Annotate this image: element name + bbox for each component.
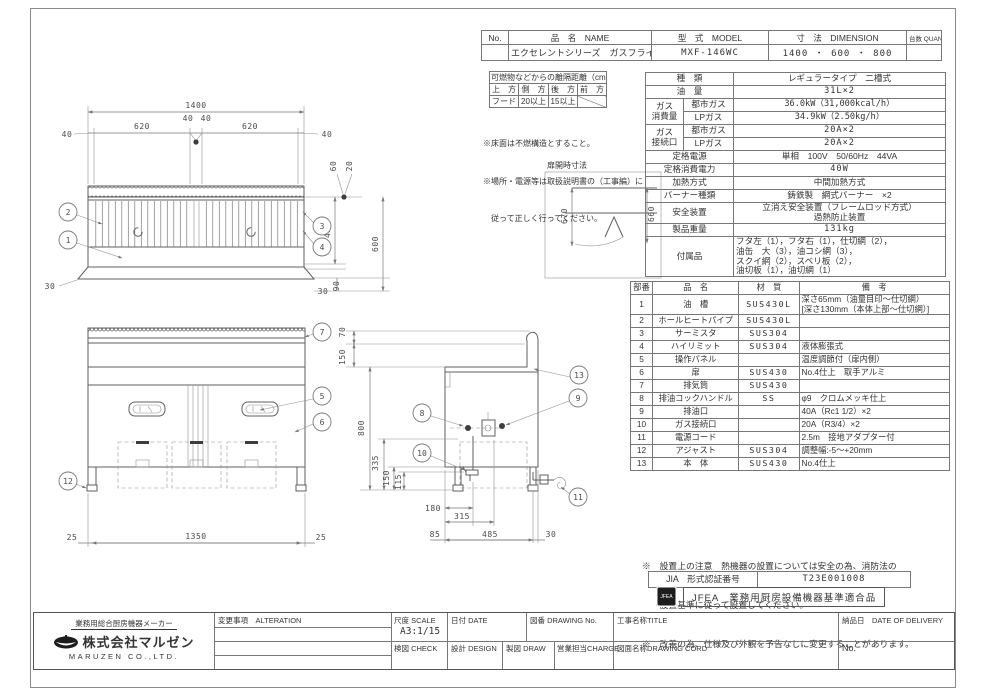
dim-side-85: 85 bbox=[430, 530, 441, 539]
balloon-5: 5 bbox=[260, 387, 331, 410]
svg-text:8: 8 bbox=[420, 409, 425, 418]
center-marker-dot bbox=[193, 139, 198, 144]
table-row: 1油 槽SUS430L深さ65mm（油量目印～仕切網） [深さ130mm（本体上… bbox=[631, 295, 950, 315]
check-label: 検図 CHECK bbox=[394, 643, 437, 654]
dim-side-180: 180 bbox=[425, 504, 441, 513]
delivery-label: 納品日 DATE OF DELIVERY bbox=[842, 615, 943, 626]
dim-side-315: 315 bbox=[454, 512, 470, 521]
drawing-no-label: 図番 DRAWING No. bbox=[530, 615, 597, 626]
dim-side-150: 150 bbox=[338, 349, 347, 365]
part-note: 2.5m 接地アダプター付 bbox=[799, 432, 949, 445]
dim-side-485: 485 bbox=[482, 530, 498, 539]
jfea-stamp-icon: JFEA bbox=[656, 586, 677, 607]
part-no: 10 bbox=[631, 419, 653, 432]
part-material: SUS430L bbox=[739, 295, 799, 315]
spec-power-label: 定格電源 bbox=[646, 151, 734, 164]
no-label: No. bbox=[842, 643, 856, 653]
spec-gas-connection-label: ガス 接続口 bbox=[646, 125, 684, 151]
maker-tagline: 業務用総合厨房機器メーカー bbox=[71, 618, 177, 630]
dim-front-1350: 1350 bbox=[185, 532, 206, 541]
dim-plan-40-left: 40 bbox=[62, 130, 73, 139]
dim-plan-60: 60 bbox=[329, 161, 338, 172]
table-row: 9排油口40A（Rc1 1/2）×2 bbox=[631, 406, 950, 419]
parts-h-no: 部番 bbox=[631, 282, 653, 295]
part-name: ハイリミット bbox=[653, 341, 739, 354]
part-note: 調整幅:-5～+20mm bbox=[799, 445, 949, 458]
svg-text:7: 7 bbox=[320, 328, 325, 337]
spec-accessories-value: フタ左（1），フタ右（1），仕切網（2）， 油缶 大（3），油コシ網（3）， ス… bbox=[734, 236, 946, 277]
table-row: 8排油コックハンドルSSφ9 クロムメッキ仕上 bbox=[631, 393, 950, 406]
clearance-h-top: 上 方 bbox=[490, 84, 519, 96]
spec-gas-connection-val1: 20A×2 bbox=[734, 125, 946, 138]
part-note: 液体膨張式 bbox=[799, 341, 949, 354]
part-note bbox=[799, 328, 949, 341]
part-no: 7 bbox=[631, 380, 653, 393]
clearance-notes: ※床面は不燃構造とすること。 ※場所・電源等は取扱説明書の（工事編）に 従って正… bbox=[483, 113, 643, 251]
part-material: SUS304 bbox=[739, 445, 799, 458]
dim-side-335: 335 bbox=[371, 455, 380, 471]
svg-text:12: 12 bbox=[63, 477, 73, 486]
header-col-dimension: 寸 法 DIMENSION bbox=[769, 31, 907, 45]
dim-plan-620-left: 620 bbox=[134, 122, 150, 131]
part-note: 温度調節付（扉内側） bbox=[799, 354, 949, 367]
dim-front-25-left: 25 bbox=[67, 533, 78, 542]
clearance-h-side: 側 方 bbox=[519, 84, 549, 96]
header-table: No. 品 名 NAME 型 式 MODEL 寸 法 DIMENSION 台数 … bbox=[481, 30, 942, 61]
spec-safety-label: 安全装置 bbox=[646, 203, 734, 224]
title-label: 工事名称TITLE bbox=[617, 615, 667, 626]
spec-gas-consumption-sub1: 都市ガス bbox=[684, 99, 734, 112]
clearance-note-1: ※床面は不燃構造とすること。 bbox=[483, 138, 643, 151]
part-no: 5 bbox=[631, 354, 653, 367]
part-no: 8 bbox=[631, 393, 653, 406]
part-note bbox=[799, 315, 949, 328]
spec-heating-value: 中間加熱方式 bbox=[734, 177, 946, 190]
door-handle-left bbox=[129, 402, 165, 416]
alteration-label: 変更事項 ALTERATION bbox=[218, 615, 301, 626]
part-note: φ9 クロムメッキ仕上 bbox=[799, 393, 949, 406]
table-row: 7排気筒SUS430 bbox=[631, 380, 950, 393]
spec-type-value: レギュラータイプ 二槽式 bbox=[734, 73, 946, 86]
spec-gas-connection-sub1: 都市ガス bbox=[684, 125, 734, 138]
svg-text:4: 4 bbox=[320, 243, 325, 252]
oil-cans-hidden bbox=[118, 441, 276, 488]
product-name: エクセレントシリーズ ガスフライヤー bbox=[509, 45, 652, 61]
dim-side-800: 800 bbox=[357, 420, 366, 436]
spec-gas-consumption-val1: 36.0kW（31,000kcal/h） bbox=[734, 99, 946, 112]
clearance-note-2: ※場所・電源等は取扱説明書の（工事編）に bbox=[483, 176, 643, 189]
dim-plan-30-left: 30 bbox=[45, 282, 56, 291]
front-view: 25 1350 25 7 5 6 12 bbox=[59, 323, 331, 547]
balloon-6: 6 bbox=[295, 413, 331, 432]
dim-plan-90: 90 bbox=[332, 281, 341, 292]
balloon-9: 9 bbox=[506, 389, 587, 425]
spec-weight-value: 131kg bbox=[734, 223, 946, 236]
dim-plan-40-c1: 40 bbox=[183, 114, 194, 123]
part-material bbox=[739, 406, 799, 419]
part-name: 本 体 bbox=[653, 458, 739, 471]
gas-piping-detail bbox=[450, 412, 505, 436]
door-handle-right bbox=[242, 402, 278, 416]
cord-label: 図面名称DRAWING CORD bbox=[617, 643, 707, 654]
table-row: 2ホールヒートパイプSUS430L bbox=[631, 315, 950, 328]
svg-text:10: 10 bbox=[417, 449, 427, 458]
clearance-h-front: 前 方 bbox=[578, 84, 607, 96]
part-no: 9 bbox=[631, 406, 653, 419]
dimension-value: 1400 ・ 600 ・ 800 bbox=[769, 45, 907, 61]
part-material: SUS304 bbox=[739, 328, 799, 341]
part-no: 1 bbox=[631, 295, 653, 315]
header-col-name: 品 名 NAME bbox=[509, 31, 652, 45]
company-cell: 業務用総合厨房機器メーカー 株式会社マルゼン MARUZEN CO.,LTD. bbox=[34, 613, 214, 669]
svg-text:6: 6 bbox=[320, 418, 325, 427]
parts-h-material: 材 質 bbox=[739, 282, 799, 295]
clearance-v-side: 20以上 bbox=[519, 96, 549, 108]
svg-text:1: 1 bbox=[66, 236, 71, 245]
table-row: 13本 体SUS430No.4仕上 bbox=[631, 458, 950, 471]
spec-burner-value: 鋳鉄製 網式バーナー ×2 bbox=[734, 190, 946, 203]
table-row: 3サーミスタSUS304 bbox=[631, 328, 950, 341]
part-name: 油 槽 bbox=[653, 295, 739, 315]
dim-plan-40-right: 40 bbox=[322, 130, 333, 139]
clearance-v-top: フード bbox=[490, 96, 519, 108]
part-material bbox=[739, 419, 799, 432]
table-row: 11電源コード2.5m 接地アダプター付 bbox=[631, 432, 950, 445]
side-view: 70 150 800 335 150 115 180 315 85 bbox=[338, 327, 588, 543]
part-material: SUS304 bbox=[739, 341, 799, 354]
svg-text:9: 9 bbox=[576, 394, 581, 403]
jfea-certification: JFEA JFEA 業務用厨房設備機器基準適合品 bbox=[656, 586, 885, 607]
clearance-h-rear: 後 方 bbox=[549, 84, 578, 96]
jfea-text: JFEA 業務用厨房設備機器基準適合品 bbox=[683, 587, 885, 607]
part-note: 20A（R3/4）×2 bbox=[799, 419, 949, 432]
part-name: アジャスト bbox=[653, 445, 739, 458]
jia-label: JIA 形式認証番号 bbox=[649, 572, 758, 587]
dim-plan-40-c2: 40 bbox=[201, 114, 212, 123]
spec-gas-connection-sub2: LPガス bbox=[684, 138, 734, 151]
part-no: 6 bbox=[631, 367, 653, 380]
part-no: 2 bbox=[631, 315, 653, 328]
table-row: 12アジャストSUS304調整幅:-5～+20mm bbox=[631, 445, 950, 458]
part-no: 4 bbox=[631, 341, 653, 354]
parts-h-name: 品 名 bbox=[653, 282, 739, 295]
part-no: 3 bbox=[631, 328, 653, 341]
part-note: 深さ65mm（油量目印～仕切網） [深さ130mm（本体上部～仕切網）] bbox=[799, 295, 949, 315]
drawing-sheet: 1400 40 620 40 40 620 40 bbox=[0, 0, 983, 695]
header-no-value bbox=[482, 45, 509, 61]
spec-gas-consumption-val2: 34.9kW（2.50kg/h） bbox=[734, 112, 946, 125]
charge-label: 営業担当CHARGE bbox=[557, 643, 619, 654]
part-material: SUS430 bbox=[739, 380, 799, 393]
svg-text:3: 3 bbox=[320, 222, 325, 231]
balloon-12: 12 bbox=[59, 472, 86, 490]
clearance-v-rear: 15以上 bbox=[549, 96, 578, 108]
spec-power-consumption-value: 40W bbox=[734, 164, 946, 177]
spec-burner-label: バーナー種類 bbox=[646, 190, 734, 203]
balloon-3: 3 bbox=[303, 212, 331, 235]
table-row: 6扉SUS430No.4仕上 取手アルミ bbox=[631, 367, 950, 380]
balloon-10: 10 bbox=[413, 444, 465, 470]
dim-side-30: 30 bbox=[546, 530, 557, 539]
spec-type-label: 種 類 bbox=[646, 73, 734, 86]
spec-weight-label: 製品重量 bbox=[646, 223, 734, 236]
part-no: 13 bbox=[631, 458, 653, 471]
part-material: SUS430 bbox=[739, 458, 799, 471]
part-note: No.4仕上 bbox=[799, 458, 949, 471]
spec-power-consumption-label: 定格消費電力 bbox=[646, 164, 734, 177]
header-col-no: No. bbox=[482, 31, 509, 45]
part-name: ホールヒートパイプ bbox=[653, 315, 739, 328]
scale-value: A3:1/15 bbox=[400, 626, 440, 637]
part-name: 排油コックハンドル bbox=[653, 393, 739, 406]
part-note: No.4仕上 取手アルミ bbox=[799, 367, 949, 380]
maruzen-logo-icon bbox=[53, 634, 79, 649]
part-name: ガス接続口 bbox=[653, 419, 739, 432]
part-name: 排油口 bbox=[653, 406, 739, 419]
plan-view: 1400 40 620 40 40 620 40 bbox=[45, 101, 390, 296]
parts-h-note: 備 考 bbox=[799, 282, 949, 295]
part-name: 電源コード bbox=[653, 432, 739, 445]
part-material bbox=[739, 432, 799, 445]
dim-plan-600: 600 bbox=[371, 236, 380, 252]
balloon-8: 8 bbox=[413, 404, 463, 426]
header-col-quantity: 台数 QUANTITY bbox=[907, 31, 942, 45]
table-row: 4ハイリミットSUS304液体膨張式 bbox=[631, 341, 950, 354]
spec-power-value: 単相 100V 50/60Hz 44VA bbox=[734, 151, 946, 164]
quantity-value bbox=[907, 45, 942, 61]
svg-text:13: 13 bbox=[574, 371, 584, 380]
part-no: 12 bbox=[631, 445, 653, 458]
dim-side-70: 70 bbox=[338, 327, 347, 338]
dim-plan-1400: 1400 bbox=[185, 101, 206, 110]
clearance-v-front bbox=[578, 96, 607, 108]
spec-gas-connection-val2: 20A×2 bbox=[734, 138, 946, 151]
part-material: SUS430 bbox=[739, 367, 799, 380]
dim-front-25-right: 25 bbox=[316, 533, 327, 542]
scale-label: 尺度 SCALE bbox=[394, 615, 436, 626]
dim-side-115: 115 bbox=[394, 474, 403, 490]
spec-safety-value: 立消え安全装置（フレームロッド方式） 過熱防止装置 bbox=[734, 203, 946, 224]
dim-plan-620-right: 620 bbox=[242, 122, 258, 131]
part-name: サーミスタ bbox=[653, 328, 739, 341]
part-material: SS bbox=[739, 393, 799, 406]
dim-plan-30-right: 30 bbox=[318, 287, 329, 296]
spec-accessories-label: 付属品 bbox=[646, 236, 734, 277]
part-name: 排気筒 bbox=[653, 380, 739, 393]
dim-plan-20: 20 bbox=[345, 161, 354, 172]
design-label: 設計 DESIGN bbox=[451, 643, 497, 654]
date-label: 日付 DATE bbox=[451, 615, 488, 626]
balloon-11: 11 bbox=[561, 487, 587, 506]
part-no: 11 bbox=[631, 432, 653, 445]
company-name: 株式会社マルゼン bbox=[82, 632, 194, 651]
svg-text:2: 2 bbox=[66, 208, 71, 217]
part-material bbox=[739, 354, 799, 367]
spec-heating-label: 加熱方式 bbox=[646, 177, 734, 190]
jia-number: T23E001008 bbox=[758, 572, 910, 587]
spec-gas-consumption-sub2: LPガス bbox=[684, 112, 734, 125]
drain-faucet bbox=[463, 436, 478, 481]
clearance-note-3: 従って正しく行ってください。 bbox=[483, 213, 643, 226]
part-note bbox=[799, 380, 949, 393]
title-block: 業務用総合厨房機器メーカー 株式会社マルゼン MARUZEN CO.,LTD. … bbox=[33, 612, 955, 670]
dim-side-150b: 150 bbox=[382, 470, 391, 486]
table-row: 5操作パネル温度調節付（扉内側） bbox=[631, 354, 950, 367]
part-material: SUS430L bbox=[739, 315, 799, 328]
part-note: 40A（Rc1 1/2）×2 bbox=[799, 406, 949, 419]
part-name: 操作パネル bbox=[653, 354, 739, 367]
spec-table: 種 類 レギュラータイプ 二槽式 油 量 31L×2 ガス 消費量 都市ガス 3… bbox=[645, 72, 946, 277]
oil-can-hidden-side bbox=[460, 442, 527, 488]
table-row: 10ガス接続口20A（R3/4）×2 bbox=[631, 419, 950, 432]
spec-gas-consumption-label: ガス 消費量 bbox=[646, 99, 684, 125]
model-number: MXF-146WC bbox=[652, 45, 769, 61]
header-col-model: 型 式 MODEL bbox=[652, 31, 769, 45]
parts-table: 部番 品 名 材 質 備 考 1油 槽SUS430L深さ65mm（油量目印～仕切… bbox=[630, 281, 950, 471]
svg-text:11: 11 bbox=[573, 493, 583, 502]
spec-oil-value: 31L×2 bbox=[734, 86, 946, 99]
balloon-7: 7 bbox=[305, 323, 331, 341]
draw-label: 製図 DRAW bbox=[506, 643, 546, 654]
part-name: 扉 bbox=[653, 367, 739, 380]
svg-text:5: 5 bbox=[320, 392, 325, 401]
balloon-13: 13 bbox=[534, 366, 588, 384]
spec-oil-label: 油 量 bbox=[646, 86, 734, 99]
company-name-en: MARUZEN CO.,LTD. bbox=[34, 652, 214, 661]
clearance-table: 可燃物などからの離隔距離（cm） 上 方 側 方 後 方 前 方 フード 20以… bbox=[489, 71, 607, 108]
clearance-title: 可燃物などからの離隔距離（cm） bbox=[490, 72, 607, 84]
